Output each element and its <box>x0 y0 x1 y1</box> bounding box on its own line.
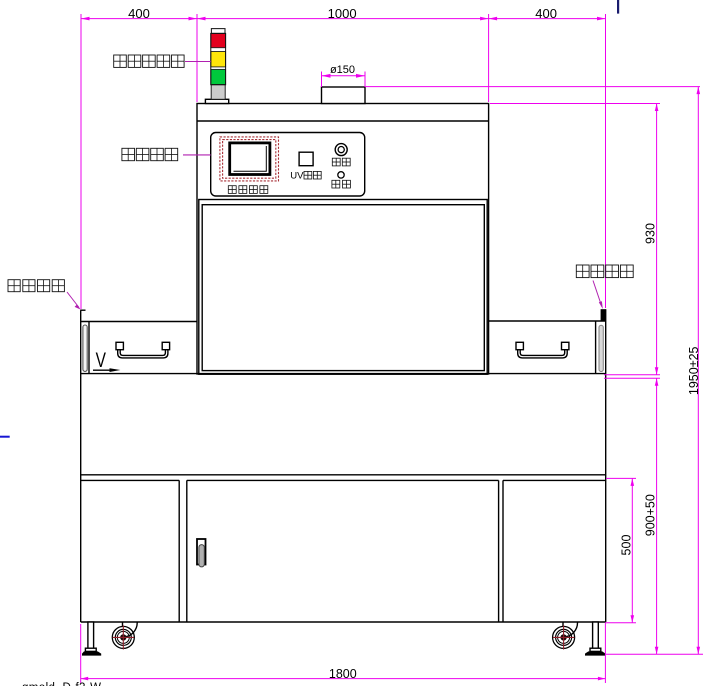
svg-text:1950±25: 1950±25 <box>687 346 701 395</box>
svg-text:900+50: 900+50 <box>644 494 658 536</box>
svg-text:UV: UV <box>290 171 304 182</box>
svg-text:400: 400 <box>535 6 557 21</box>
svg-text:ø150: ø150 <box>330 64 355 76</box>
svg-text:930: 930 <box>644 223 658 244</box>
svg-text:1000: 1000 <box>328 6 357 21</box>
svg-text:400: 400 <box>128 6 150 21</box>
svg-text:gmold. D-f2-W: gmold. D-f2-W <box>22 682 101 686</box>
svg-text:500: 500 <box>620 535 634 556</box>
svg-text:V: V <box>96 347 107 371</box>
svg-text:1800: 1800 <box>329 667 357 681</box>
